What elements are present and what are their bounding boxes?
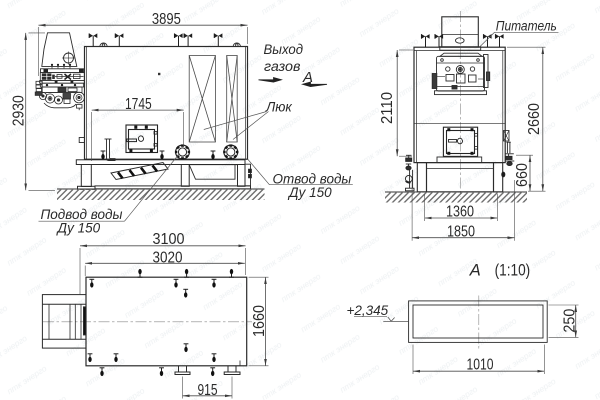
svg-text:Ду 150: Ду 150 bbox=[287, 185, 332, 200]
svg-text:2660: 2660 bbox=[526, 103, 543, 135]
svg-text:Выход: Выход bbox=[264, 42, 304, 57]
svg-text:660: 660 bbox=[514, 163, 531, 187]
svg-text:250: 250 bbox=[561, 309, 578, 333]
svg-text:1360: 1360 bbox=[446, 204, 474, 221]
svg-text:А: А bbox=[469, 261, 481, 279]
svg-text:1660: 1660 bbox=[251, 305, 268, 337]
svg-text:915: 915 bbox=[198, 382, 218, 399]
svg-text:3020: 3020 bbox=[153, 249, 183, 266]
svg-text:3895: 3895 bbox=[152, 11, 181, 28]
svg-text:3100: 3100 bbox=[153, 231, 185, 248]
svg-text:(1:10): (1:10) bbox=[495, 261, 531, 279]
svg-text:1850: 1850 bbox=[447, 223, 475, 240]
svg-text:Ду 150: Ду 150 bbox=[56, 221, 101, 236]
svg-text:2930: 2930 bbox=[11, 95, 28, 126]
svg-text:Питатель: Питатель bbox=[496, 19, 557, 34]
svg-text:1745: 1745 bbox=[125, 96, 152, 113]
svg-text:+2,345: +2,345 bbox=[347, 303, 389, 318]
svg-text:2110: 2110 bbox=[379, 92, 396, 124]
svg-text:газов: газов bbox=[264, 59, 301, 74]
svg-text:1010: 1010 bbox=[467, 356, 494, 373]
svg-text:Люк: Люк bbox=[265, 100, 292, 115]
